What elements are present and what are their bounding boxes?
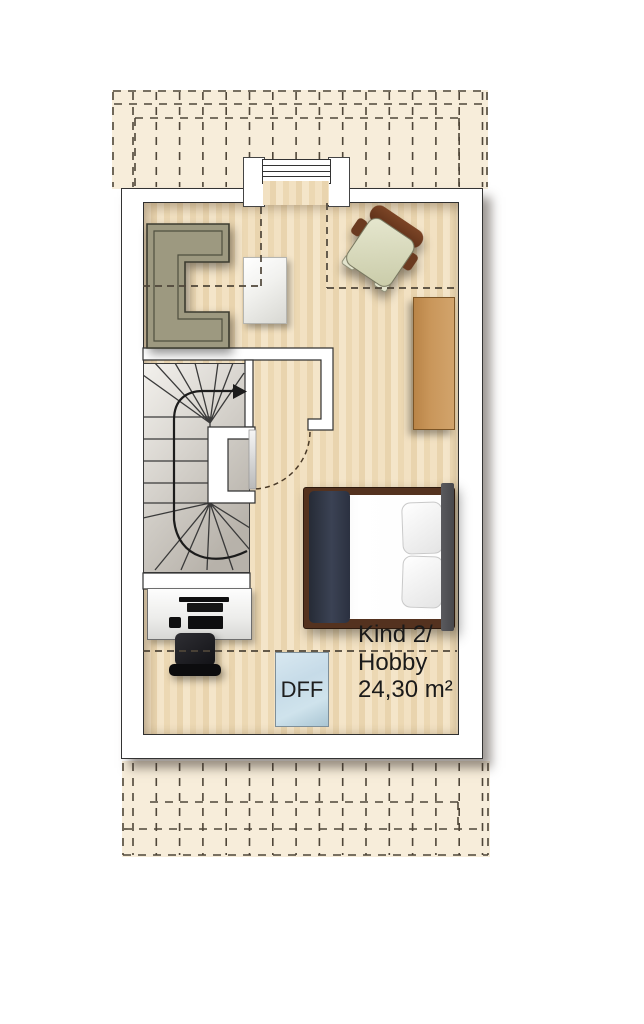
mouse: [169, 617, 181, 628]
skylight-label: DFF: [281, 677, 324, 703]
window-pane-line: [263, 171, 330, 172]
bed-blanket: [309, 491, 350, 623]
monitor: [179, 597, 229, 602]
monitor-stand: [187, 603, 223, 612]
corner-sofa: [144, 221, 234, 352]
stair-well: [144, 364, 250, 573]
room-area: 24,30 m²: [358, 676, 488, 704]
keyboard: [188, 616, 223, 629]
window-pane-line: [263, 176, 330, 177]
skylight-dff: DFF: [275, 652, 329, 727]
bed-pillow: [401, 501, 444, 554]
bed-pillow: [401, 555, 444, 608]
staircase: [143, 363, 250, 573]
bed: [301, 483, 457, 631]
room-name-line1: Kind 2/: [358, 621, 488, 649]
side-table: [243, 257, 287, 324]
dormer-wall-right: [328, 157, 350, 207]
floorplan-canvas: DFF Kind 2/ Hobby 24,30 m²: [0, 0, 644, 1024]
room-name-line2: Hobby: [358, 649, 488, 677]
roof-overhang-bottom-lines: [122, 761, 490, 857]
rafter-dashed-lines: [133, 763, 483, 855]
sideboard-desk: [413, 297, 455, 430]
dormer-floor: [263, 181, 329, 205]
window-pane-line: [263, 165, 330, 166]
bed-headboard: [441, 483, 454, 631]
room-label: Kind 2/ Hobby 24,30 m²: [358, 621, 488, 704]
desk-chair-backrest: [169, 664, 221, 676]
roof-overhang-bottom: [122, 761, 490, 857]
desk-chair-seat: [175, 633, 215, 666]
desk-chair: [168, 633, 222, 677]
